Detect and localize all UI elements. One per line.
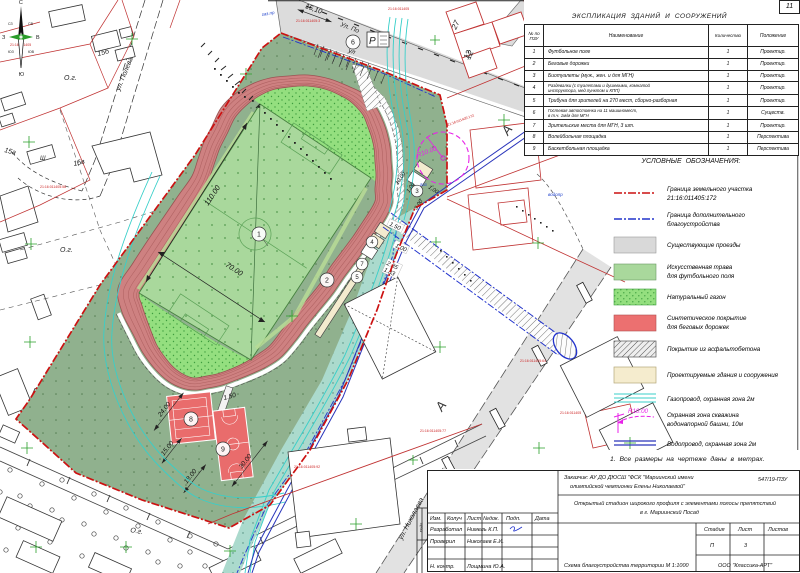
- svg-text:ООО "Классика-АРТ": ООО "Классика-АРТ": [718, 563, 773, 569]
- svg-text:6: 6: [351, 40, 355, 47]
- svg-text:21:16:011405:77: 21:16:011405:77: [420, 429, 446, 433]
- svg-text:СЗ: СЗ: [8, 22, 13, 26]
- svg-text:Дата: Дата: [534, 516, 550, 522]
- svg-text:Подп.: Подп.: [506, 516, 521, 522]
- svg-text:олимпийской чемпионки Елены Ни: олимпийской чемпионки Елены Николаевой": [570, 483, 686, 490]
- svg-text:Заказчик: АУ ДО ДЮСШ "ФСК "Мар: Заказчик: АУ ДО ДЮСШ "ФСК "Мариинский им…: [564, 474, 694, 481]
- svg-text:Натуральный газон: Натуральный газон: [667, 294, 726, 301]
- svg-text:Листов: Листов: [767, 527, 788, 533]
- svg-text:благоустройства: благоустройства: [667, 221, 720, 228]
- svg-text:ЮВ: ЮВ: [28, 50, 35, 54]
- svg-text:О.г.: О.г.: [60, 247, 73, 254]
- svg-text:С: С: [19, 0, 23, 6]
- svg-text:547/19-ПЗУ: 547/19-ПЗУ: [758, 477, 788, 483]
- svg-text:Синтетическое покрытие: Синтетическое покрытие: [667, 315, 747, 322]
- svg-text:Искусственная трава: Искусственная трава: [667, 264, 733, 271]
- svg-text:Водопровод, охранная зона 2м: Водопровод, охранная зона 2м: [667, 441, 757, 448]
- svg-text:1: 1: [257, 232, 261, 239]
- svg-text:ЮЗ: ЮЗ: [8, 50, 14, 54]
- svg-text:P: P: [369, 36, 376, 47]
- svg-text:Существующие проезды: Существующие проезды: [667, 242, 741, 249]
- svg-text:для беговых дорожек: для беговых дорожек: [667, 324, 730, 331]
- svg-text:Проектируемые здания и сооруже: Проектируемые здания и сооружения: [667, 372, 779, 379]
- svg-text:Лист: Лист: [737, 527, 753, 533]
- svg-text:21:16:011405: 21:16:011405: [388, 7, 409, 11]
- svg-text:Николаев Е.И.: Николаев Е.И.: [467, 539, 504, 545]
- svg-text:Ш: Ш: [40, 156, 46, 162]
- svg-text:Нимель К.П.: Нимель К.П.: [467, 527, 498, 533]
- svg-text:П: П: [710, 543, 714, 549]
- svg-text:21:16:011405:3: 21:16:011405:3: [296, 19, 320, 23]
- svg-text:водопр: водопр: [548, 192, 563, 197]
- svg-text:Граница дополнительного: Граница дополнительного: [667, 212, 745, 219]
- svg-text:Схема благоустройства территор: Схема благоустройства территории М 1:100…: [564, 562, 690, 569]
- svg-text:О.г.: О.г.: [64, 75, 77, 82]
- svg-text:Лощмина Ю.А.: Лощмина Ю.А.: [466, 564, 505, 570]
- svg-text:газ: газ: [420, 182, 427, 187]
- svg-text:Открытый стадион широкого проф: Открытый стадион широкого профиля с элем…: [574, 500, 776, 507]
- svg-text:для футбольного поля: для футбольного поля: [667, 273, 735, 280]
- svg-text:Подп.: Подп.: [419, 522, 424, 533]
- svg-text:Колуч: Колуч: [447, 516, 462, 522]
- svg-text:3: 3: [744, 543, 748, 549]
- svg-text:Лист: Лист: [466, 516, 482, 522]
- svg-text:21:16:011405:64: 21:16:011405:64: [520, 359, 546, 363]
- svg-text:водонапорной башни, 10м: водонапорной башни, 10м: [667, 421, 744, 428]
- svg-text:Газопровод, охранная зона 2м: Газопровод, охранная зона 2м: [667, 396, 755, 403]
- svg-text:Разработал: Разработал: [430, 527, 462, 533]
- svg-text:в г. Мариинский Посад: в г. Мариинский Посад: [640, 509, 699, 516]
- svg-text:Охранная зона скважина: Охранная зона скважина: [667, 412, 739, 419]
- svg-text:Н. контр.: Н. контр.: [430, 564, 455, 570]
- svg-text:Проверил: Проверил: [430, 539, 455, 545]
- svg-text:Покрытие из асфальтобетона: Покрытие из асфальтобетона: [667, 346, 761, 353]
- svg-text:Изм.: Изм.: [430, 516, 442, 522]
- svg-text:21:16:011405:58: 21:16:011405:58: [40, 185, 66, 189]
- svg-text:СВ: СВ: [28, 22, 34, 26]
- svg-text:21:16:011405: 21:16:011405: [560, 411, 581, 415]
- svg-text:№док.: №док.: [483, 516, 499, 522]
- svg-text:Ю: Ю: [19, 72, 25, 78]
- svg-text:8: 8: [189, 417, 193, 424]
- svg-text:21:16:011405:172: 21:16:011405:172: [666, 195, 717, 202]
- svg-text:R10.00: R10.00: [628, 408, 649, 415]
- svg-text:9: 9: [221, 447, 225, 454]
- svg-text:В: В: [36, 35, 40, 41]
- svg-text:Стадия: Стадия: [704, 527, 725, 533]
- svg-text:Граница земельного участка: Граница земельного участка: [667, 186, 753, 193]
- svg-text:2: 2: [325, 278, 329, 285]
